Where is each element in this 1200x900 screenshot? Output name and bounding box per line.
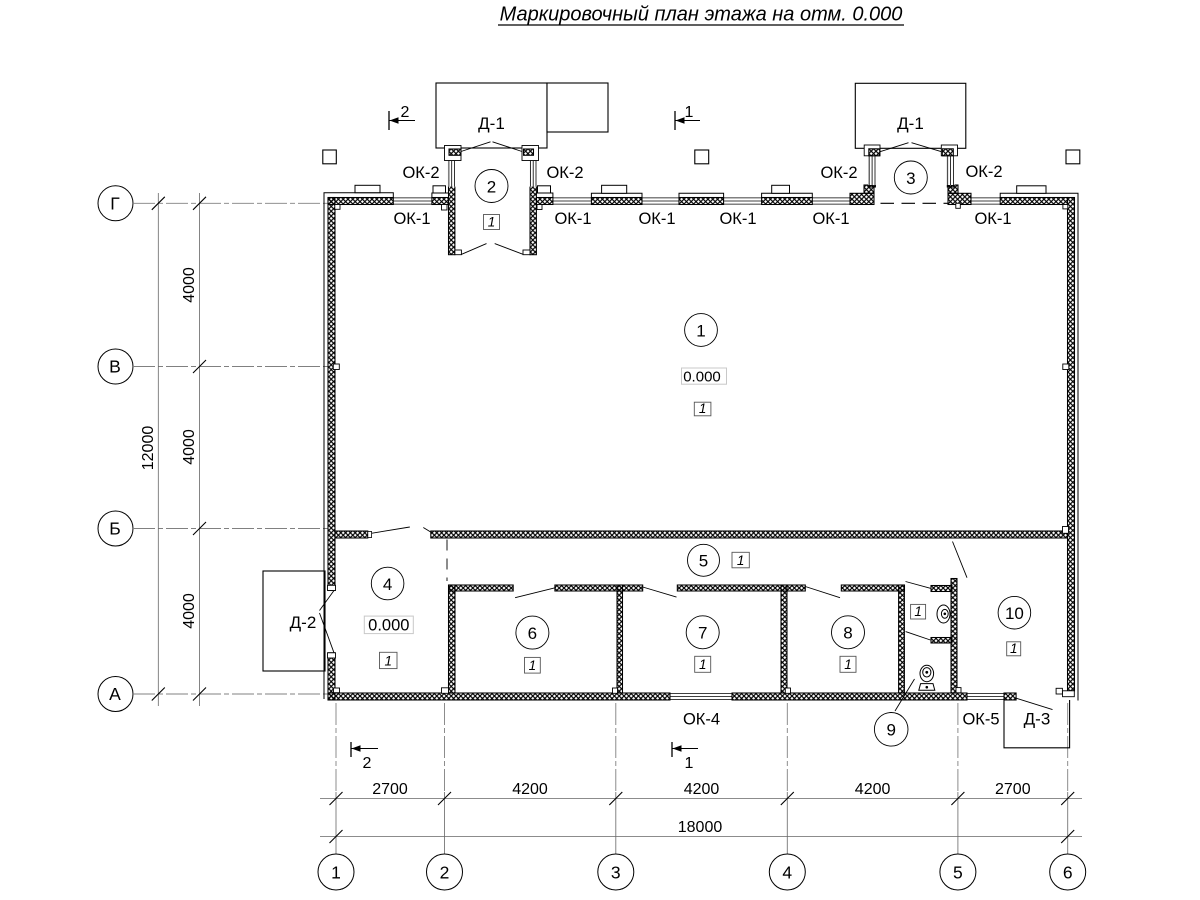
svg-text:Г: Г (110, 194, 120, 214)
svg-text:1: 1 (844, 657, 852, 672)
svg-text:4000: 4000 (181, 267, 198, 303)
svg-text:2700: 2700 (372, 781, 408, 798)
svg-text:4200: 4200 (684, 781, 720, 798)
svg-text:12000: 12000 (140, 426, 157, 471)
svg-text:ОК-1: ОК-1 (719, 210, 756, 228)
svg-text:Д-3: Д-3 (1024, 710, 1051, 729)
svg-text:1: 1 (699, 657, 707, 672)
svg-text:4000: 4000 (181, 429, 198, 465)
svg-text:1: 1 (331, 863, 341, 883)
svg-text:1: 1 (737, 553, 745, 568)
svg-text:5: 5 (699, 552, 708, 571)
svg-text:ОК-2: ОК-2 (965, 163, 1002, 181)
svg-text:1: 1 (699, 401, 707, 416)
svg-text:Маркировочный план этажа на от: Маркировочный план этажа на отм. 0.000 (500, 4, 903, 26)
svg-text:2: 2 (487, 177, 496, 196)
svg-text:1: 1 (529, 658, 537, 673)
svg-text:3: 3 (906, 169, 915, 188)
svg-text:Д-1: Д-1 (478, 114, 505, 133)
svg-text:2: 2 (363, 755, 372, 772)
svg-text:1: 1 (914, 604, 922, 619)
svg-text:ОК-1: ОК-1 (812, 210, 849, 228)
svg-text:ОК-2: ОК-2 (546, 164, 583, 182)
svg-text:1: 1 (384, 654, 392, 669)
svg-text:1: 1 (488, 215, 496, 230)
svg-text:ОК-1: ОК-1 (638, 210, 675, 228)
svg-text:4: 4 (782, 863, 792, 883)
svg-text:1: 1 (685, 104, 694, 121)
svg-text:ОК-1: ОК-1 (974, 210, 1011, 228)
svg-text:ОК-2: ОК-2 (820, 164, 857, 182)
svg-text:Д-1: Д-1 (897, 114, 924, 133)
svg-text:4: 4 (383, 575, 392, 594)
svg-text:10: 10 (1005, 604, 1024, 623)
svg-text:ОК-2: ОК-2 (402, 164, 439, 182)
svg-text:9: 9 (886, 721, 895, 740)
svg-text:1: 1 (1010, 641, 1018, 656)
svg-text:ОК-5: ОК-5 (962, 711, 999, 729)
svg-text:3: 3 (611, 863, 621, 883)
svg-text:А: А (109, 684, 121, 704)
svg-text:1: 1 (685, 755, 694, 772)
svg-text:0.000: 0.000 (368, 617, 409, 635)
svg-text:6: 6 (1063, 863, 1073, 883)
svg-text:Б: Б (109, 519, 120, 539)
svg-text:ОК-4: ОК-4 (683, 711, 720, 729)
svg-text:6: 6 (528, 624, 537, 643)
svg-text:1: 1 (696, 321, 705, 340)
svg-text:4200: 4200 (855, 781, 891, 798)
svg-text:ОК-1: ОК-1 (554, 210, 591, 228)
svg-text:8: 8 (843, 624, 852, 643)
svg-text:7: 7 (698, 624, 707, 643)
svg-text:4000: 4000 (181, 593, 198, 629)
svg-text:2: 2 (440, 863, 450, 883)
svg-text:В: В (109, 357, 121, 377)
svg-text:2: 2 (401, 104, 410, 121)
svg-text:5: 5 (953, 863, 963, 883)
svg-text:18000: 18000 (678, 819, 723, 836)
svg-text:2700: 2700 (995, 781, 1031, 798)
svg-text:4200: 4200 (512, 781, 548, 798)
svg-text:Д-2: Д-2 (290, 613, 317, 632)
svg-text:0.000: 0.000 (683, 368, 721, 385)
svg-text:ОК-1: ОК-1 (393, 210, 430, 228)
